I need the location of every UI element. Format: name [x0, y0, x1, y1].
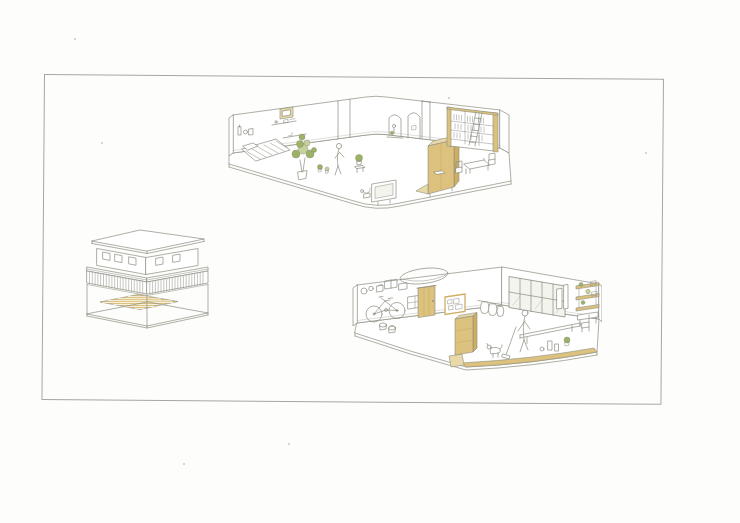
louver-band — [87, 271, 208, 296]
scan-speck — [288, 443, 290, 445]
house-exterior-drawing — [70, 222, 225, 337]
upper-floor-interior-drawing — [226, 88, 528, 220]
upper-wall-and-windows — [97, 249, 198, 275]
scan-speck — [74, 38, 76, 40]
cabinet — [455, 313, 477, 356]
roof-slab — [92, 230, 204, 254]
scan-speck — [645, 152, 647, 154]
pin-board — [445, 294, 465, 315]
scanned-drawing-sheet — [0, 0, 740, 523]
scan-speck — [448, 97, 450, 99]
deck-platform — [100, 295, 178, 310]
wood-door — [417, 285, 436, 317]
scan-speck — [101, 142, 103, 144]
scan-speck — [183, 463, 185, 465]
ground-floor-interior-drawing — [352, 255, 602, 375]
